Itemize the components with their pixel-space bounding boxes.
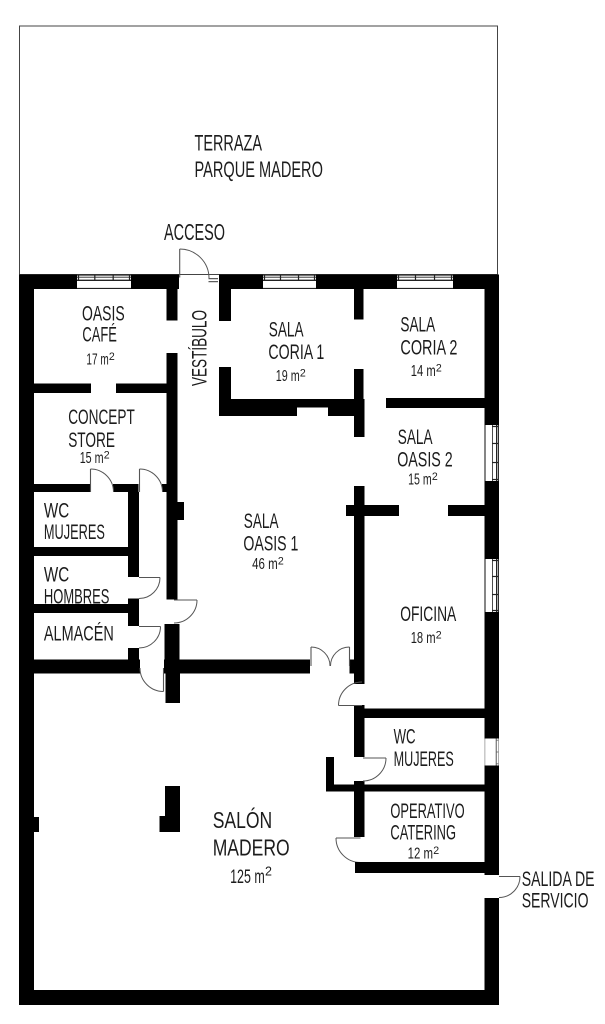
svg-text:15 m: 15 m [408, 472, 432, 489]
svg-text:ALMACÉN: ALMACÉN [44, 621, 114, 646]
svg-text:STORE: STORE [68, 428, 115, 452]
svg-text:MUJERES: MUJERES [394, 747, 454, 771]
svg-text:TERRAZA: TERRAZA [195, 131, 263, 156]
svg-text:2: 2 [436, 630, 442, 642]
svg-text:19 m: 19 m [276, 368, 300, 385]
svg-text:MUJERES: MUJERES [44, 520, 105, 544]
svg-text:MADERO: MADERO [213, 834, 290, 860]
svg-text:2: 2 [300, 368, 306, 380]
svg-text:OASIS 2: OASIS 2 [397, 448, 453, 472]
svg-text:ACCESO: ACCESO [164, 219, 225, 245]
svg-text:OFICINA: OFICINA [400, 602, 457, 626]
svg-text:2: 2 [436, 363, 442, 375]
svg-text:SALIDA DE: SALIDA DE [522, 867, 595, 891]
svg-text:CORIA 2: CORIA 2 [400, 336, 457, 360]
svg-text:SALA: SALA [269, 318, 304, 342]
svg-text:14 m: 14 m [411, 363, 436, 380]
svg-text:SALÓN: SALÓN [213, 807, 273, 833]
svg-text:2: 2 [432, 471, 438, 483]
svg-text:WC: WC [44, 562, 69, 586]
svg-text:15 m: 15 m [80, 450, 104, 467]
svg-text:WC: WC [44, 498, 69, 522]
svg-text:CORIA 1: CORIA 1 [268, 340, 324, 364]
svg-text:2: 2 [278, 556, 284, 568]
svg-text:OPERATIVO: OPERATIVO [390, 799, 464, 823]
svg-text:CAFÉ: CAFÉ [82, 321, 117, 346]
svg-text:46 m: 46 m [252, 556, 278, 573]
svg-text:18 m: 18 m [411, 630, 436, 647]
svg-text:SALA: SALA [244, 509, 279, 533]
svg-text:OASIS 1: OASIS 1 [243, 532, 298, 556]
svg-text:12 m: 12 m [408, 846, 433, 863]
svg-text:17 m: 17 m [86, 352, 108, 369]
svg-text:WC: WC [394, 725, 416, 749]
svg-text:2: 2 [265, 864, 272, 878]
svg-text:SALA: SALA [398, 425, 433, 449]
svg-text:125 m: 125 m [230, 867, 265, 888]
svg-text:2: 2 [109, 351, 115, 363]
svg-text:CATERING: CATERING [390, 820, 456, 844]
svg-text:CONCEPT: CONCEPT [68, 405, 135, 429]
svg-text:SALA: SALA [400, 313, 435, 337]
svg-text:PARQUE MADERO: PARQUE MADERO [195, 157, 323, 182]
svg-text:2: 2 [104, 450, 110, 462]
svg-text:2: 2 [433, 845, 439, 857]
svg-text:SERVICIO: SERVICIO [522, 889, 589, 913]
svg-text:VESTÍBULO: VESTÍBULO [187, 310, 212, 386]
